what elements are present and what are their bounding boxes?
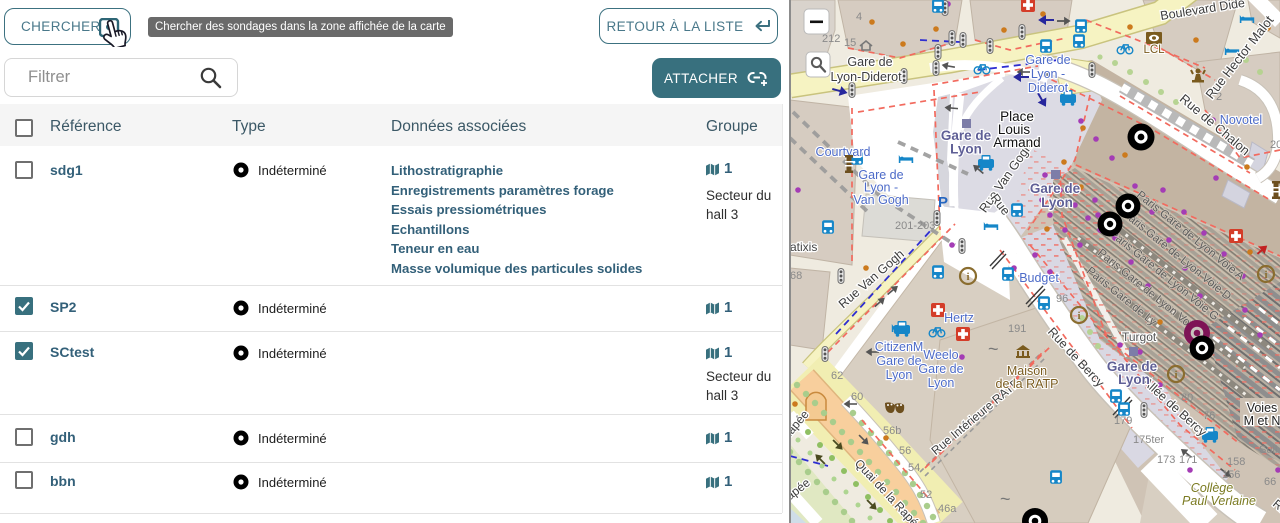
svg-text:4: 4 bbox=[856, 11, 862, 23]
svg-text:M et N: M et N bbox=[1244, 414, 1280, 428]
svg-text:CitizenM: CitizenM bbox=[875, 340, 924, 354]
svg-text:Gare de: Gare de bbox=[847, 55, 892, 69]
svg-text:46a: 46a bbox=[938, 503, 957, 515]
svg-text:Voies: Voies bbox=[1247, 401, 1278, 415]
svg-text:171: 171 bbox=[1179, 454, 1197, 466]
svg-text:Novotel: Novotel bbox=[1220, 113, 1262, 127]
svg-text:i: i bbox=[1264, 269, 1267, 281]
svg-text:175ter: 175ter bbox=[1133, 434, 1165, 446]
svg-text:54: 54 bbox=[908, 462, 920, 474]
svg-text:Maison: Maison bbox=[1007, 364, 1047, 378]
svg-text:i: i bbox=[1174, 369, 1177, 381]
svg-text:Weelo: Weelo bbox=[923, 348, 958, 362]
svg-text:56b: 56b bbox=[883, 425, 901, 437]
svg-text:Budget: Budget bbox=[1019, 271, 1059, 285]
svg-text:Turgot: Turgot bbox=[1122, 330, 1157, 344]
svg-text:80: 80 bbox=[1181, 392, 1193, 404]
svg-text:201-203: 201-203 bbox=[895, 220, 935, 232]
svg-text:Gare de: Gare de bbox=[1025, 53, 1070, 67]
svg-text:20: 20 bbox=[1270, 139, 1280, 151]
svg-text:56: 56 bbox=[899, 445, 911, 457]
svg-text:Lyon-Diderot: Lyon-Diderot bbox=[830, 70, 902, 84]
svg-text:Paul Verlaine: Paul Verlaine bbox=[1182, 494, 1256, 508]
svg-text:68: 68 bbox=[790, 270, 802, 282]
svg-text:76: 76 bbox=[1203, 410, 1215, 422]
svg-text:Lyon: Lyon bbox=[886, 368, 913, 382]
svg-text:15: 15 bbox=[844, 37, 856, 49]
svg-text:Gare de: Gare de bbox=[876, 354, 921, 368]
svg-text:Armand: Armand bbox=[993, 135, 1040, 150]
svg-text:156: 156 bbox=[1222, 469, 1240, 481]
svg-text:179: 179 bbox=[1114, 415, 1132, 427]
svg-text:Lyon: Lyon bbox=[1041, 195, 1073, 210]
svg-text:i: i bbox=[966, 271, 969, 283]
svg-text:Gare de: Gare de bbox=[1030, 181, 1081, 196]
svg-text:P: P bbox=[938, 194, 948, 211]
svg-text:Courtyard: Courtyard bbox=[816, 145, 871, 159]
svg-text:Lyon -: Lyon - bbox=[1031, 67, 1065, 81]
svg-text:atixis: atixis bbox=[790, 240, 817, 254]
svg-text:Hertz: Hertz bbox=[944, 311, 974, 325]
svg-text:52: 52 bbox=[920, 489, 932, 501]
svg-text:62: 62 bbox=[831, 370, 843, 382]
svg-text:66: 66 bbox=[1264, 476, 1276, 488]
svg-text:~: ~ bbox=[988, 339, 999, 359]
svg-text:212: 212 bbox=[822, 33, 840, 45]
svg-text:de la RATP: de la RATP bbox=[996, 377, 1059, 391]
svg-text:191: 191 bbox=[1008, 323, 1026, 335]
svg-text:Gare de: Gare de bbox=[918, 362, 963, 376]
svg-text:2: 2 bbox=[1216, 91, 1222, 103]
svg-text:Lyon: Lyon bbox=[950, 142, 982, 157]
svg-text:Van Gogh: Van Gogh bbox=[853, 193, 908, 207]
svg-text:Lyon: Lyon bbox=[1118, 372, 1150, 387]
svg-text:~: ~ bbox=[1106, 331, 1112, 343]
svg-text:Collège: Collège bbox=[1191, 481, 1233, 495]
svg-text:LCL: LCL bbox=[1143, 44, 1165, 56]
svg-text:158: 158 bbox=[1227, 456, 1245, 468]
svg-text:Diderot: Diderot bbox=[1028, 81, 1069, 95]
svg-text:~: ~ bbox=[1000, 489, 1011, 509]
svg-text:Lyon: Lyon bbox=[928, 376, 955, 390]
svg-text:96: 96 bbox=[1056, 293, 1068, 305]
svg-text:Sull: Sull bbox=[1259, 444, 1277, 456]
svg-text:i: i bbox=[1077, 310, 1080, 322]
svg-text:173: 173 bbox=[1157, 454, 1175, 466]
svg-text:60: 60 bbox=[851, 391, 863, 403]
